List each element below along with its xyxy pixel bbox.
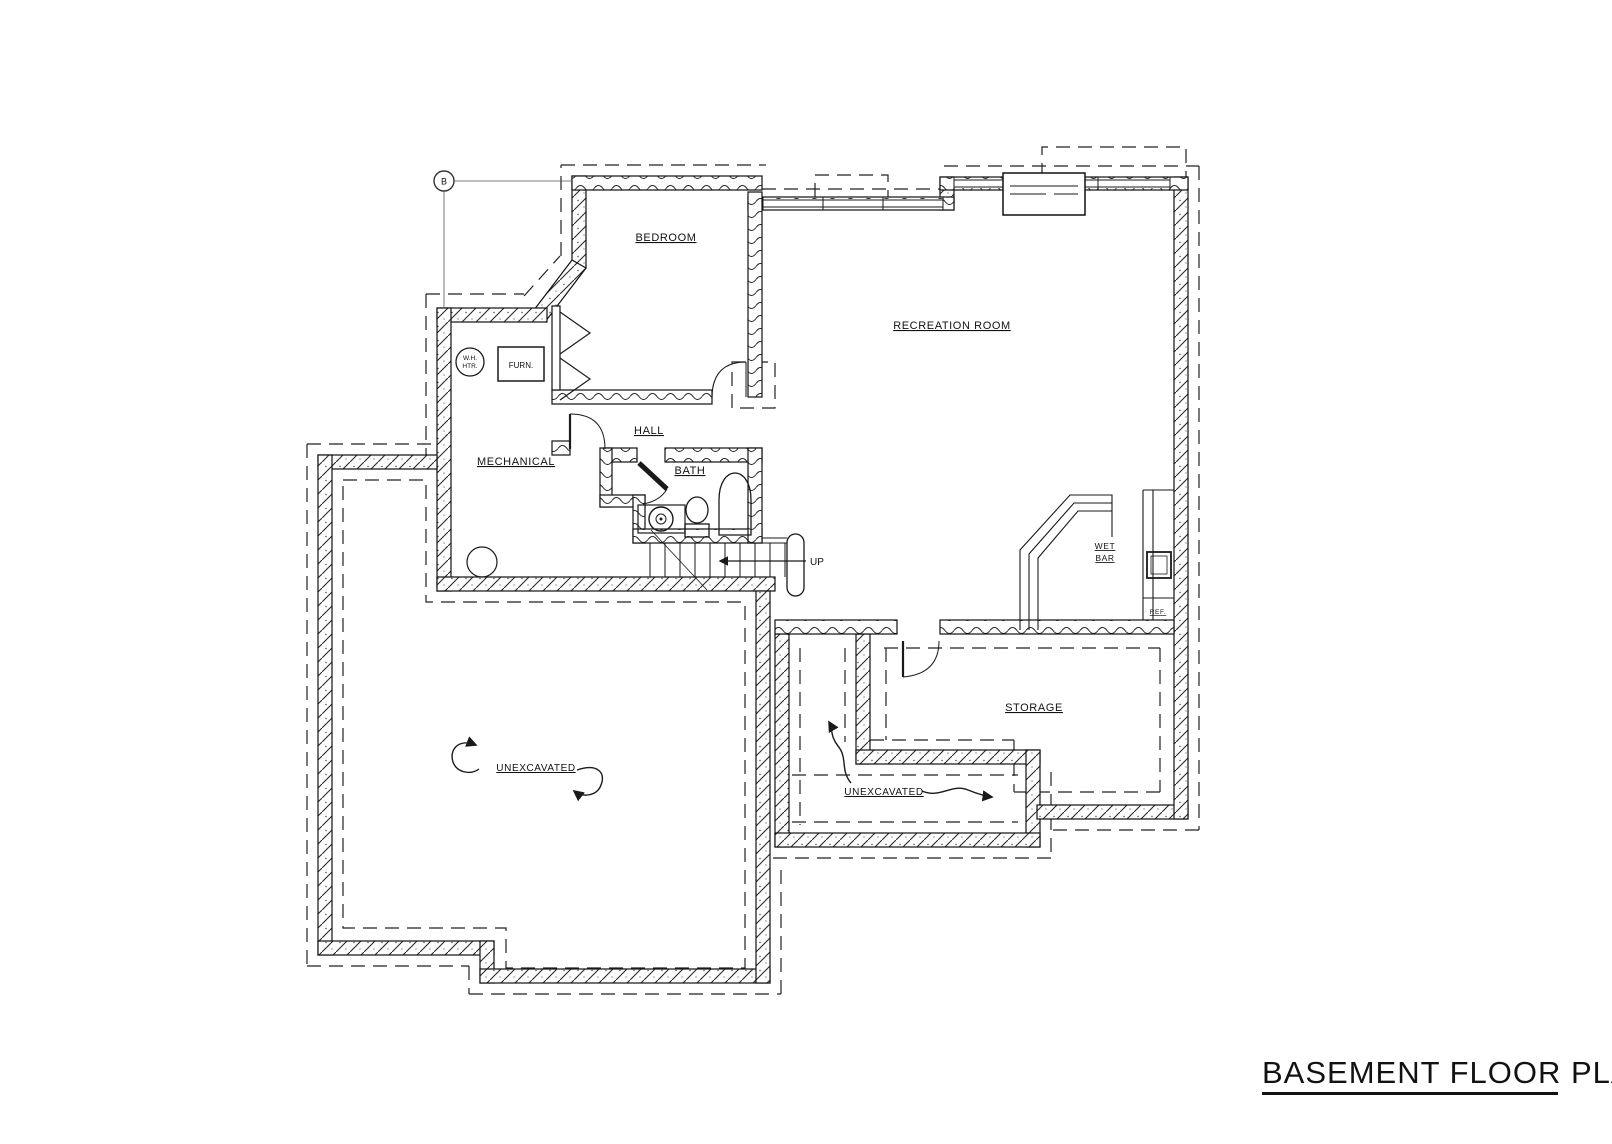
water-heater-label-2: HTR. [462, 363, 477, 370]
room-label-mechanical: MECHANICAL [477, 456, 555, 468]
reference-marker-letter: B [441, 177, 447, 187]
unexcavated-right-arrow-right [922, 788, 992, 797]
bathroom-fixtures [638, 473, 751, 537]
bathtub [719, 473, 751, 535]
room-label-unexcavated-right: UNEXCAVATED [844, 787, 923, 798]
page: UP W.H. HTR. FURN. WET BAR REF. B [0, 0, 1612, 1144]
floor-drain [467, 547, 497, 577]
bath-door-leaf [639, 463, 667, 489]
bedroom-door-arc [712, 362, 746, 398]
room-label-hall: HALL [634, 425, 664, 437]
floor-plan-drawing: UP W.H. HTR. FURN. WET BAR REF. B [0, 0, 1612, 1144]
mechanical-door-arc [570, 414, 605, 449]
unexcavated-left-arrow-2 [574, 768, 602, 795]
room-label-bedroom: BEDROOM [635, 232, 696, 244]
water-heater-label-1: W.H. [463, 355, 477, 362]
wet-bar: WET BAR REF. [1020, 490, 1174, 630]
stair-rail-end [787, 534, 804, 596]
room-label-unexcavated-left: UNEXCAVATED [496, 763, 575, 774]
window-well-small [815, 175, 888, 197]
toilet-bowl [686, 497, 708, 523]
framed-walls [552, 176, 1188, 634]
refrigerator-label: REF. [1150, 609, 1167, 616]
wet-bar-label-1: WET [1095, 541, 1116, 551]
wet-bar-label-2: BAR [1095, 553, 1114, 563]
drawing-title: BASEMENT FLOOR PLAN [1262, 1055, 1612, 1090]
storage-door-arc [903, 641, 939, 677]
title-underline [1262, 1092, 1558, 1095]
title-block: BASEMENT FLOOR PLAN [1262, 1055, 1612, 1095]
closet-partition-wall [552, 306, 560, 390]
room-label-storage: STORAGE [1005, 702, 1063, 714]
room-label-bath: BATH [675, 465, 706, 477]
bath-door-arc [643, 489, 667, 504]
unexcavated-left-arrow-1 [452, 743, 479, 772]
water-heater [456, 348, 484, 376]
furnace-label: FURN. [509, 361, 533, 370]
closet-bifold-doors [560, 312, 590, 400]
unexcavated-right-arrow-up [829, 722, 851, 783]
room-label-recreation-room: RECREATION ROOM [893, 320, 1011, 332]
stairs-up-label: UP [810, 557, 824, 568]
